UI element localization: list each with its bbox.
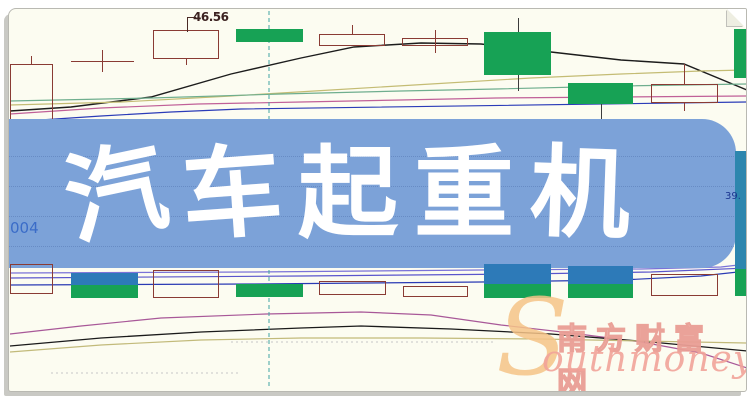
volume-bar-hollow: [10, 264, 53, 294]
volume-bar-blue-green: [484, 264, 551, 298]
volume-bar-hollow: [651, 274, 718, 296]
page-fold-corner-cover: [726, 8, 747, 29]
right-price-fragment-label: 39.: [725, 192, 741, 202]
right-edge-candle-strip: [735, 151, 747, 296]
volume-bars-layer: [9, 9, 746, 391]
volume-bar-green: [236, 284, 303, 297]
volume-bar-hollow: [403, 286, 468, 297]
price-annotation-label: 46.56: [193, 11, 228, 23]
chart-page: 汽车起重机 46.56 004 39. S 南方财富网 outhmoney.co…: [8, 8, 747, 392]
left-code-fragment-label: 004: [10, 221, 39, 236]
volume-bar-hollow: [319, 281, 386, 295]
volume-bar-blue-green: [71, 273, 138, 298]
volume-bar-hollow: [153, 270, 219, 298]
volume-bar-blue-green: [568, 266, 633, 298]
screenshot-stage: 汽车起重机 46.56 004 39. S 南方财富网 outhmoney.co…: [0, 0, 750, 400]
